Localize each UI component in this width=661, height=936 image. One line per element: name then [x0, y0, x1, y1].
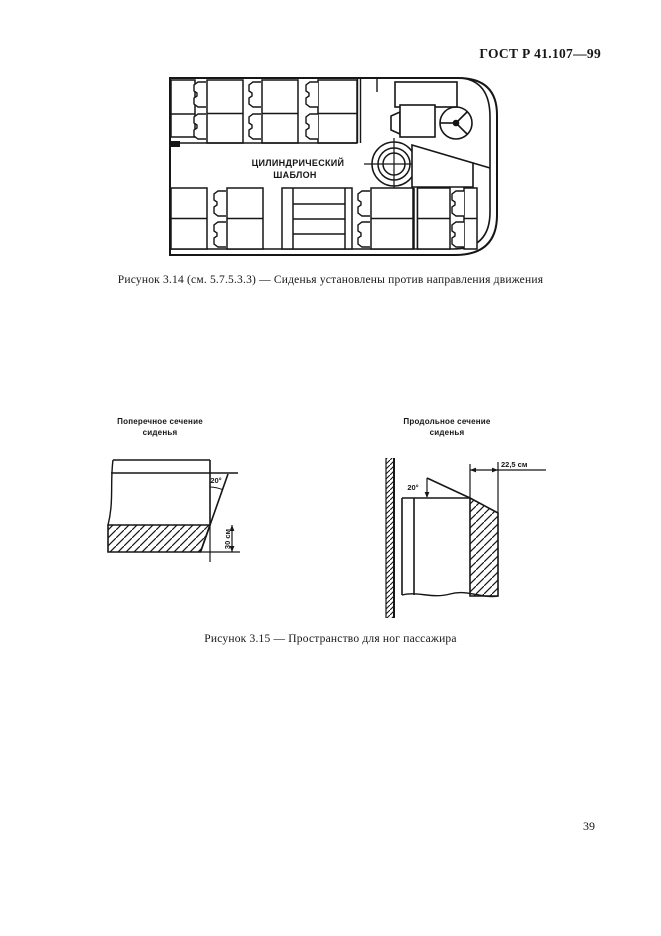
cross-section-title: Поперечное сечение сиденья — [105, 416, 215, 438]
angle-line — [427, 478, 470, 498]
seat-back-icon — [194, 82, 206, 107]
bus-floorplan-drawing: ЦИЛИНДРИЧЕСКИЙ ШАБЛОН — [165, 72, 505, 267]
steering-wheel-icon — [440, 107, 472, 139]
figure-3-14-caption: Рисунок 3.14 (см. 5.7.5.3.3) — Сиденья у… — [0, 274, 661, 286]
page-number: 39 — [583, 819, 595, 834]
depth-dimension-label: 22,5 см — [501, 460, 528, 469]
table — [282, 188, 352, 249]
figure-3-15-caption: Рисунок 3.15 — Пространство для ног пасс… — [0, 633, 661, 645]
document-page: ГОСТ Р 41.107—99 — [0, 0, 661, 936]
longitudinal-section-title-line2: сиденья — [392, 427, 502, 438]
seat-back-icon — [306, 114, 318, 139]
cross-section-title-line1: Поперечное сечение — [105, 416, 215, 427]
seat-back-icon — [214, 191, 226, 216]
seat-back-icon — [249, 82, 261, 107]
height-dimension-label: 30 см — [223, 528, 232, 549]
driver-seat — [400, 105, 435, 137]
seat-back-icon — [249, 114, 261, 139]
angle-arc — [210, 487, 223, 490]
cross-section-drawing: 20° 30 см — [100, 450, 250, 575]
driver-area — [391, 82, 472, 139]
door-marker — [171, 141, 180, 147]
seat-back-icon — [358, 222, 370, 247]
seat-back-icon — [214, 222, 226, 247]
seat-back-icon — [452, 191, 464, 216]
seat-row-top — [171, 80, 357, 143]
angle-label-left: 20° — [210, 476, 221, 485]
template-label-line1: ЦИЛИНДРИЧЕСКИЙ — [252, 157, 345, 168]
longitudinal-section-drawing: 20° 22,5 см — [380, 450, 555, 625]
driver-seat-headrest — [391, 112, 400, 134]
arrow-left-icon — [470, 468, 476, 473]
seat-back-icon — [194, 114, 206, 139]
template-label-line2: ШАБЛОН — [273, 170, 316, 180]
floor-hatch — [108, 525, 210, 552]
dashboard — [395, 82, 457, 107]
wall-hatch — [386, 458, 394, 618]
arrow-right-icon — [492, 468, 498, 473]
longitudinal-section-title-line1: Продольное сечение — [392, 416, 502, 427]
cross-section-title-line2: сиденья — [105, 427, 215, 438]
seat-row-bottom — [171, 188, 477, 249]
longitudinal-section-title: Продольное сечение сиденья — [392, 416, 502, 438]
standard-code-header: ГОСТ Р 41.107—99 — [479, 46, 601, 62]
break-line — [108, 460, 113, 525]
arrow-down-icon — [425, 492, 430, 498]
seat-back-icon — [452, 222, 464, 247]
foot-space-hatch — [470, 498, 498, 596]
front-panel — [412, 145, 490, 187]
seat-back-icon — [306, 82, 318, 107]
angle-label-right: 20° — [407, 483, 418, 492]
seat-back-icon — [358, 191, 370, 216]
partition-lines — [358, 78, 378, 143]
